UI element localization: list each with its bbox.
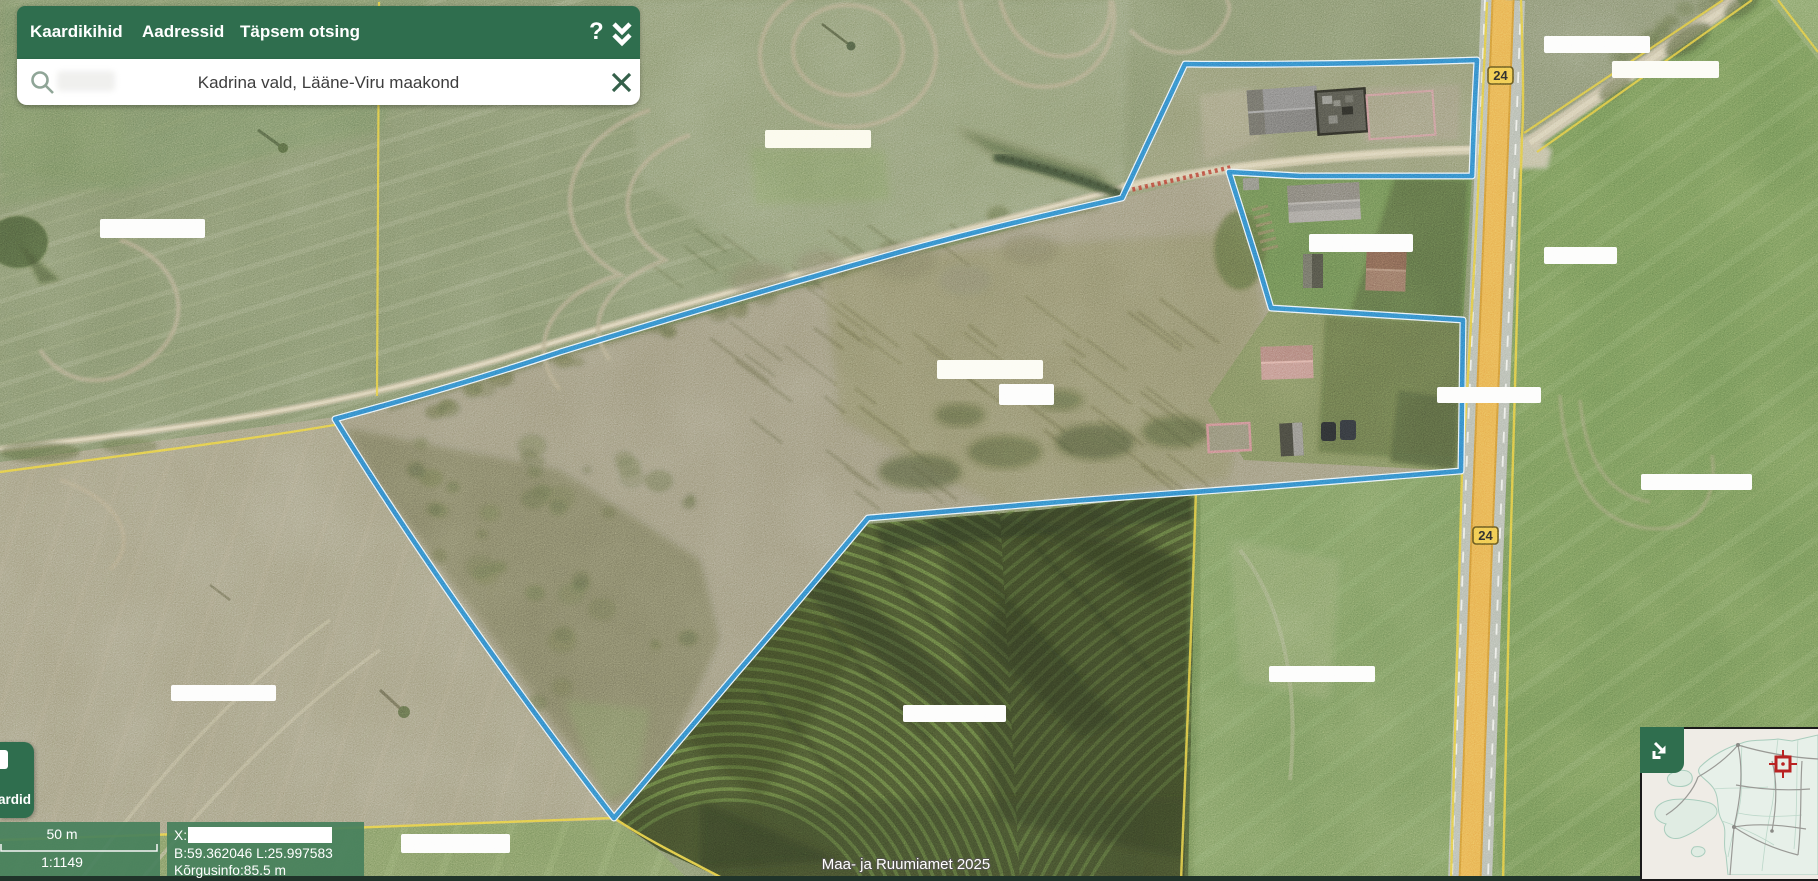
svg-text:Maa- ja Ruumiamet 2025: Maa- ja Ruumiamet 2025 (822, 856, 990, 873)
